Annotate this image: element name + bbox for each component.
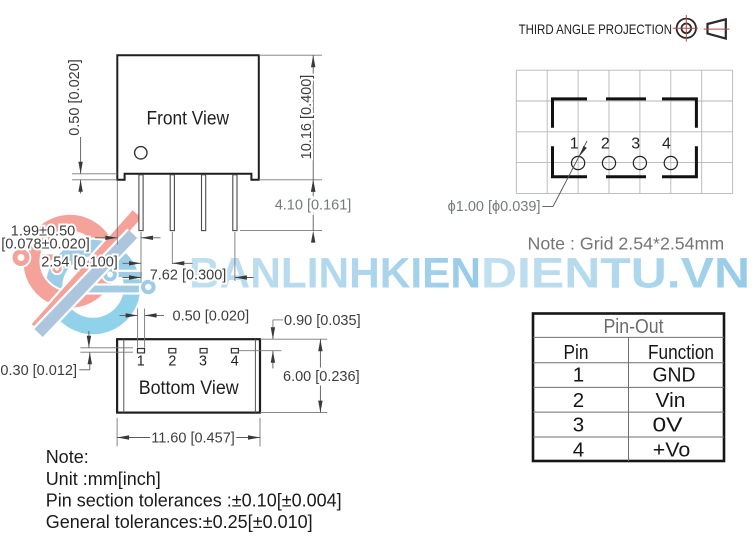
- svg-text:[0.078±0.020]: [0.078±0.020]: [1, 237, 90, 253]
- svg-text:Note : Grid 2.54*2.54mm: Note : Grid 2.54*2.54mm: [528, 234, 725, 254]
- svg-text:GND: GND: [653, 364, 696, 387]
- svg-text:1: 1: [137, 354, 145, 370]
- svg-text:4.10 [0.161]: 4.10 [0.161]: [275, 198, 352, 214]
- svg-text:0.30 [0.012]: 0.30 [0.012]: [0, 363, 77, 379]
- svg-text:1: 1: [573, 364, 584, 387]
- svg-text:3: 3: [573, 413, 584, 436]
- svg-text:4: 4: [662, 135, 671, 152]
- svg-text:2: 2: [168, 354, 176, 370]
- svg-text:3: 3: [631, 135, 640, 152]
- svg-text:0.90 [0.035]: 0.90 [0.035]: [284, 313, 361, 329]
- svg-text:BANLINHKIEN: BANLINHKIEN: [189, 250, 481, 298]
- svg-text:General tolerances:±0.25[±0.01: General tolerances:±0.25[±0.010]: [46, 512, 313, 532]
- svg-text:Bottom View: Bottom View: [139, 377, 240, 399]
- svg-text:2: 2: [601, 135, 610, 152]
- svg-text:Function: Function: [648, 341, 714, 364]
- svg-text:3: 3: [199, 354, 207, 370]
- svg-text:4: 4: [231, 354, 239, 370]
- svg-text:Pin section tolerances :±0.10[: Pin section tolerances :±0.10[±0.004]: [46, 491, 342, 511]
- svg-text:Unit :mm[inch]: Unit :mm[inch]: [46, 469, 161, 489]
- svg-text:Pin-Out: Pin-Out: [604, 315, 664, 338]
- svg-text:2.54 [0.100]: 2.54 [0.100]: [41, 255, 118, 271]
- svg-text:DIENTU.VN: DIENTU.VN: [481, 250, 750, 298]
- svg-text:0V: 0V: [653, 413, 683, 436]
- svg-text:10.16 [0.400]: 10.16 [0.400]: [299, 75, 315, 160]
- svg-text:6.00 [0.236]: 6.00 [0.236]: [283, 369, 360, 385]
- svg-text:11.60 [0.457]: 11.60 [0.457]: [151, 431, 235, 447]
- svg-text:THIRD ANGLE PROJECTION: THIRD ANGLE PROJECTION: [519, 21, 672, 37]
- svg-text:+Vo: +Vo: [653, 439, 691, 462]
- svg-text:2: 2: [573, 389, 584, 412]
- svg-text:Note:: Note:: [46, 447, 89, 467]
- svg-text:0.50 [0.020]: 0.50 [0.020]: [173, 308, 250, 324]
- svg-text:ϕ1.00 [ϕ0.039]: ϕ1.00 [ϕ0.039]: [448, 199, 541, 215]
- svg-text:4: 4: [573, 439, 584, 462]
- svg-text:1: 1: [570, 135, 579, 152]
- svg-text:7.62 [0.300]: 7.62 [0.300]: [150, 268, 227, 284]
- svg-text:Vin: Vin: [656, 389, 686, 412]
- svg-text:Front View: Front View: [147, 108, 230, 130]
- svg-text:Pin: Pin: [564, 341, 589, 364]
- svg-text:0.50 [0.020]: 0.50 [0.020]: [67, 59, 83, 136]
